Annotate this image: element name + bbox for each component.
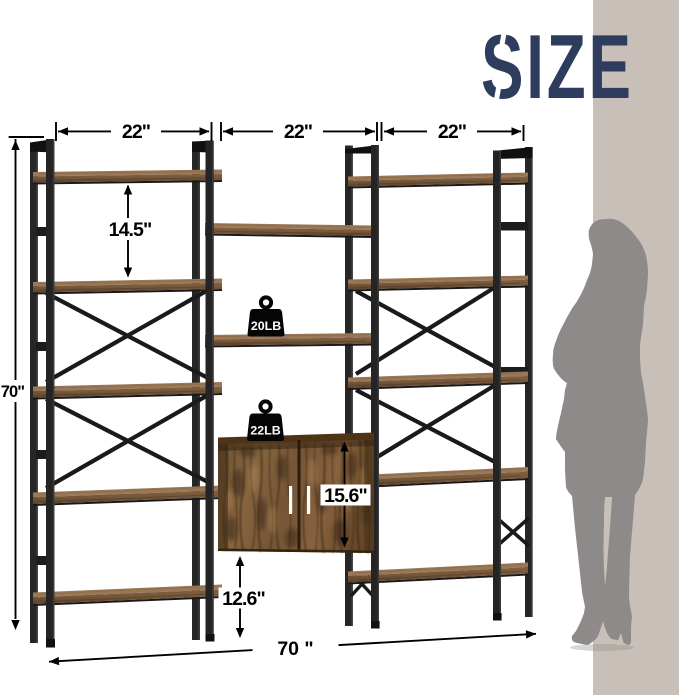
svg-text:22": 22" [122,121,150,143]
svg-text:22LB: 22LB [250,423,280,437]
svg-text:12.6": 12.6" [222,588,265,610]
svg-text:20LB: 20LB [251,319,281,333]
svg-text:22": 22" [438,121,466,143]
svg-text:70 ": 70 " [277,638,313,660]
svg-text:15.6": 15.6" [324,485,367,507]
svg-text:22": 22" [284,121,312,143]
svg-text:14.5": 14.5" [109,219,152,241]
svg-text:70": 70" [1,383,25,401]
